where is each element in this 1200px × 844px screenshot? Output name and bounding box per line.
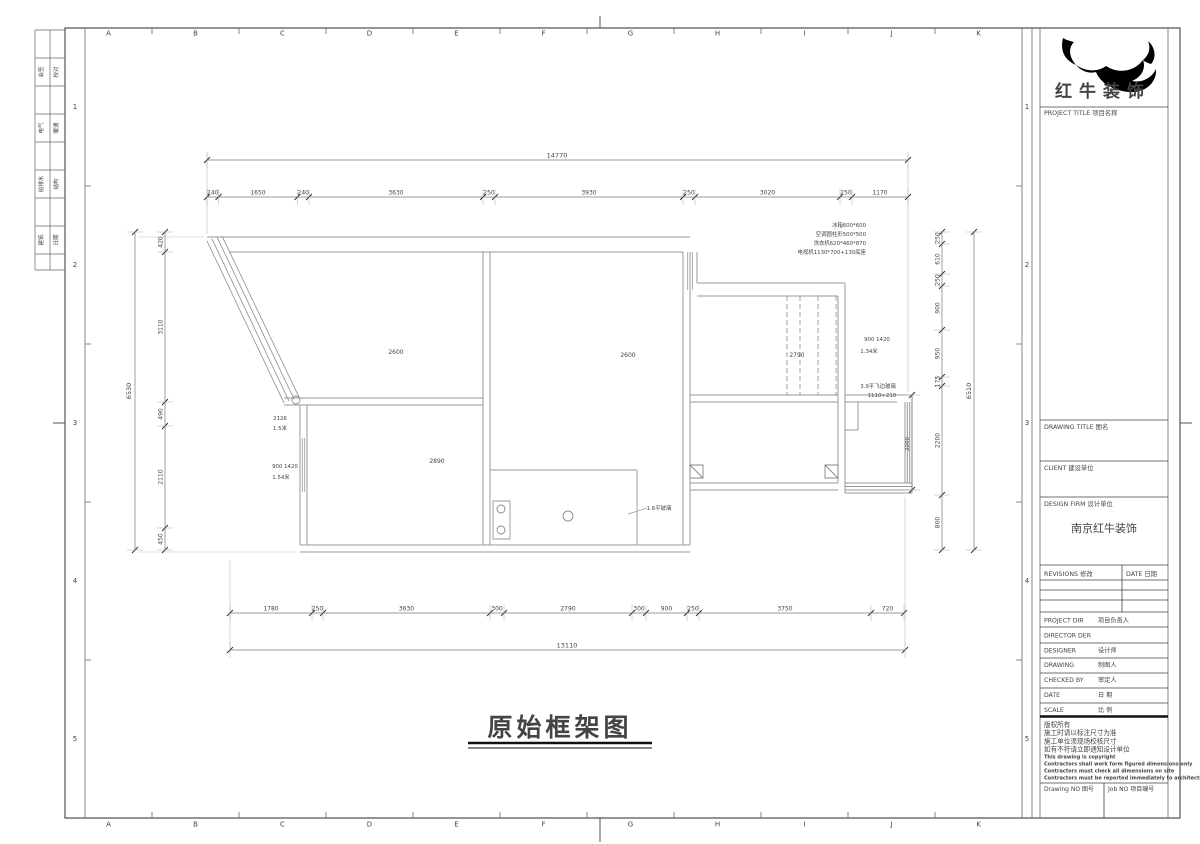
drawing-no-label: Drawing NO 图号 bbox=[1044, 786, 1094, 793]
plan-note: 900 1420 bbox=[864, 337, 890, 343]
plan-note: 1110+210 bbox=[868, 393, 897, 399]
info-row-label-en: DIRECTOR DER bbox=[1044, 632, 1092, 639]
room-dimension-label: 2790 bbox=[789, 352, 804, 359]
dimension-label: 1170 bbox=[872, 190, 887, 197]
ruler-letter: C bbox=[280, 30, 285, 38]
ruler-number: 4 bbox=[1025, 577, 1030, 585]
plan-note: 1.6平玻璃 bbox=[647, 504, 672, 512]
ruler-letter: E bbox=[454, 821, 458, 829]
dimension-label: 450 bbox=[158, 533, 165, 545]
signature-cell-label: 给排水 bbox=[37, 175, 45, 192]
dimension-label: 3750 bbox=[777, 606, 792, 613]
signature-cell-label: 校对 bbox=[52, 66, 60, 78]
dimension-label: 490 bbox=[158, 408, 165, 420]
copyright-line-en: Contractors must be reported immediately… bbox=[1044, 776, 1200, 782]
design-firm-label: DESIGN FIRM 设计单位 bbox=[1044, 499, 1113, 508]
dimension-label: 250 bbox=[683, 190, 695, 197]
ruler-letter: F bbox=[541, 821, 545, 829]
plan-note: 3.9平飞边玻璃 bbox=[860, 382, 896, 390]
dimension-label: 3630 bbox=[388, 190, 403, 197]
copyright-line-cn: 版权所有 bbox=[1044, 720, 1071, 729]
dimension-label: 2790 bbox=[560, 606, 575, 613]
copyright-line-cn: 施工单位须现场校核尺寸 bbox=[1044, 736, 1117, 745]
ruler-number: 3 bbox=[1025, 419, 1029, 427]
dimension-label: 950 bbox=[935, 348, 942, 360]
plan-note: 冰箱600*600 bbox=[832, 221, 867, 229]
plan-note: 空调圆柱形500*500 bbox=[816, 230, 867, 238]
ruler-number: 3 bbox=[73, 419, 77, 427]
dimension-label: 420 bbox=[158, 236, 165, 248]
info-row-label-cn: 设计师 bbox=[1098, 646, 1117, 654]
dimension-label: 175 bbox=[935, 376, 942, 388]
plan-note: 1.5米 bbox=[273, 424, 288, 432]
ruler-letter: J bbox=[889, 30, 892, 38]
dimension-label: 1650 bbox=[250, 190, 265, 197]
dimension-label: 720 bbox=[882, 606, 894, 613]
info-row-label-en: DATE bbox=[1044, 692, 1060, 699]
dimension-label: 240 bbox=[207, 190, 219, 197]
ruler-letter: I bbox=[803, 30, 805, 38]
copyright-line-en: Contractors must check all dimensions on… bbox=[1044, 769, 1175, 775]
plan-note: 1.34米 bbox=[860, 347, 878, 355]
sheet-ruler: AABBCCDDEEFFGGHHIIJJKK1122334455 bbox=[73, 28, 1030, 829]
dimension-label: 2200 bbox=[935, 433, 942, 448]
drawing-sheet: 会签校对电气暖通给排水结构建筑日期 AABBCCDDEEFFGGHHIIJJKK… bbox=[0, 0, 1200, 844]
dim-total-right: 6510 bbox=[965, 383, 973, 400]
dimension-label: 2110 bbox=[158, 469, 165, 484]
ruler-number: 2 bbox=[73, 261, 77, 269]
ruler-letter: A bbox=[106, 30, 111, 38]
info-row-label-cn: 制图人 bbox=[1098, 661, 1117, 669]
plan-annotations: 2600260027902890冰箱600*600空调圆柱形500*500洗衣机… bbox=[272, 221, 897, 512]
ruler-number: 2 bbox=[1025, 261, 1029, 269]
ruler-tick bbox=[85, 28, 1022, 818]
ruler-letter: G bbox=[628, 821, 633, 829]
ruler-letter: D bbox=[367, 821, 372, 829]
drawing-title-label: DRAWING TITLE 图名 bbox=[1044, 422, 1108, 431]
ruler-number: 5 bbox=[73, 735, 77, 743]
room-dimension-label: 2600 bbox=[388, 349, 403, 356]
room-dimension-label: 2600 bbox=[620, 352, 635, 359]
dimension-label: 250 bbox=[935, 274, 942, 286]
plan-note: 1.54米 bbox=[272, 473, 290, 481]
info-row-label-en: DRAWING bbox=[1044, 662, 1074, 669]
dimension-label: 250 bbox=[840, 190, 852, 197]
dashed-structure bbox=[787, 296, 836, 395]
dim-total-top: 14770 bbox=[547, 152, 568, 160]
ruler-letter: I bbox=[803, 821, 805, 829]
ruler-letter: F bbox=[541, 30, 545, 38]
dim-total-left: 6530 bbox=[125, 383, 133, 400]
ruler-letter: K bbox=[976, 30, 981, 38]
ruler-letter: K bbox=[976, 821, 981, 829]
info-row-label-en: SCALE bbox=[1044, 707, 1064, 714]
info-row-label-en: PROJECT DIR bbox=[1044, 618, 1084, 625]
dimension-label: 250 bbox=[483, 190, 495, 197]
ruler-letter: H bbox=[715, 30, 720, 38]
dimension-label: 300 bbox=[633, 606, 645, 613]
bay-window-glazing bbox=[207, 236, 299, 403]
column-symbols bbox=[690, 465, 838, 478]
signature-strip: 会签校对电气暖通给排水结构建筑日期 bbox=[35, 30, 65, 270]
copyright-line-cn: 施工时请以标注尺寸为准 bbox=[1044, 728, 1117, 737]
ruler-letter: A bbox=[106, 821, 111, 829]
ruler-number: 1 bbox=[73, 103, 77, 111]
info-row-label-cn: 日 期 bbox=[1098, 691, 1112, 699]
floor-plan bbox=[138, 153, 912, 646]
dimension-label: 3110 bbox=[158, 319, 165, 334]
info-row-label-cn: 比 例 bbox=[1098, 706, 1112, 714]
design-firm-value: 南京红牛装饰 bbox=[1071, 521, 1137, 535]
job-no-label: Job NO 项目编号 bbox=[1107, 785, 1154, 793]
plumbing-symbol bbox=[563, 511, 573, 521]
ruler-number: 1 bbox=[1025, 103, 1029, 111]
dimension-label: 610 bbox=[935, 253, 942, 265]
cad-canvas: 会签校对电气暖通给排水结构建筑日期 AABBCCDDEEFFGGHHIIJJKK… bbox=[0, 0, 1200, 844]
dimension-label: 250 bbox=[312, 606, 324, 613]
dimension-label: 240 bbox=[298, 190, 310, 197]
plan-note: 900 1420 bbox=[272, 464, 298, 470]
plan-note: 洗衣机620*460*870 bbox=[814, 239, 867, 247]
dimension-label: 1780 bbox=[263, 606, 278, 613]
ruler-letter: D bbox=[367, 30, 372, 38]
title-block: 红牛装饰 PROJECT TITLE 项目名称 DRAWING TITLE 图名… bbox=[1040, 38, 1200, 818]
dimension-label: 900 bbox=[935, 302, 942, 314]
kitchen-unit bbox=[490, 470, 637, 545]
dim-total-bottom: 13110 bbox=[557, 642, 578, 650]
copyright-line-en: This drawing is copyright bbox=[1044, 755, 1116, 761]
plumbing-symbol bbox=[497, 505, 505, 513]
signature-cell-label: 暖通 bbox=[52, 122, 60, 134]
info-row-label-en: CHECKED BY bbox=[1044, 677, 1084, 684]
leader-line bbox=[628, 508, 647, 514]
room-dimension-label: 2890 bbox=[429, 458, 444, 465]
signature-cell-label: 建筑 bbox=[37, 234, 45, 246]
dimension-label: 3020 bbox=[760, 190, 775, 197]
info-row-label-cn: 审定人 bbox=[1098, 676, 1117, 684]
copyright-line-en: Contractors shall work form figured dime… bbox=[1044, 762, 1193, 768]
title-block-info-rows: PROJECT DIR项目负责人DIRECTOR DERDESIGNER设计师D… bbox=[1044, 617, 1129, 714]
dim-right-inner: 2200 bbox=[905, 437, 911, 451]
signature-cell-label: 日期 bbox=[53, 234, 60, 246]
window-glazing bbox=[302, 252, 692, 492]
walls bbox=[207, 237, 912, 552]
company-name: 红牛装饰 bbox=[1055, 81, 1151, 102]
ruler-number: 4 bbox=[73, 577, 78, 585]
info-row-label-cn: 项目负责人 bbox=[1098, 617, 1129, 625]
revisions-label: REVISIONS 修改 bbox=[1044, 569, 1093, 578]
ruler-letter: E bbox=[454, 30, 458, 38]
copyright-block: 版权所有施工时请以标注尺寸为准施工单位须现场校核尺寸如有不符请立即通知设计单位T… bbox=[1044, 720, 1200, 782]
page-title: 原始框架图 bbox=[487, 713, 632, 742]
dimension-label: 250 bbox=[687, 606, 699, 613]
plan-note: 电视机1130*700+130底座 bbox=[798, 248, 867, 256]
extension-lines bbox=[138, 153, 908, 646]
client-label: CLIENT 建设单位 bbox=[1044, 463, 1094, 472]
dimension-label: 300 bbox=[491, 606, 503, 613]
ruler-number: 5 bbox=[1025, 735, 1029, 743]
ruler-letter: H bbox=[715, 821, 720, 829]
copyright-line-cn: 如有不符请立即通知设计单位 bbox=[1044, 745, 1130, 754]
main-title: 原始框架图 bbox=[468, 713, 652, 748]
signature-cell-label: 结构 bbox=[52, 178, 60, 190]
plumbing-symbol bbox=[497, 526, 505, 534]
info-row-label-en: DESIGNER bbox=[1044, 647, 1077, 654]
dimension-label: 900 bbox=[661, 606, 673, 613]
project-title-label: PROJECT TITLE 项目名称 bbox=[1044, 108, 1118, 117]
dimension-label: 250 bbox=[935, 232, 942, 244]
signature-cell-label: 电气 bbox=[37, 122, 45, 134]
ruler-letter: B bbox=[193, 821, 198, 829]
plan-note: 2126 bbox=[273, 416, 287, 422]
ruler-letter: J bbox=[889, 821, 892, 829]
dimension-label: 3930 bbox=[581, 190, 596, 197]
signature-cell-label: 会签 bbox=[37, 66, 45, 78]
date-header-label: DATE 日期 bbox=[1126, 570, 1157, 578]
dimension-label: 800 bbox=[935, 517, 942, 529]
ruler-letter: B bbox=[193, 30, 198, 38]
dimension-label: 3630 bbox=[399, 606, 414, 613]
ruler-letter: G bbox=[628, 30, 633, 38]
plumbing-symbol bbox=[292, 396, 300, 404]
ruler-letter: C bbox=[280, 821, 285, 829]
